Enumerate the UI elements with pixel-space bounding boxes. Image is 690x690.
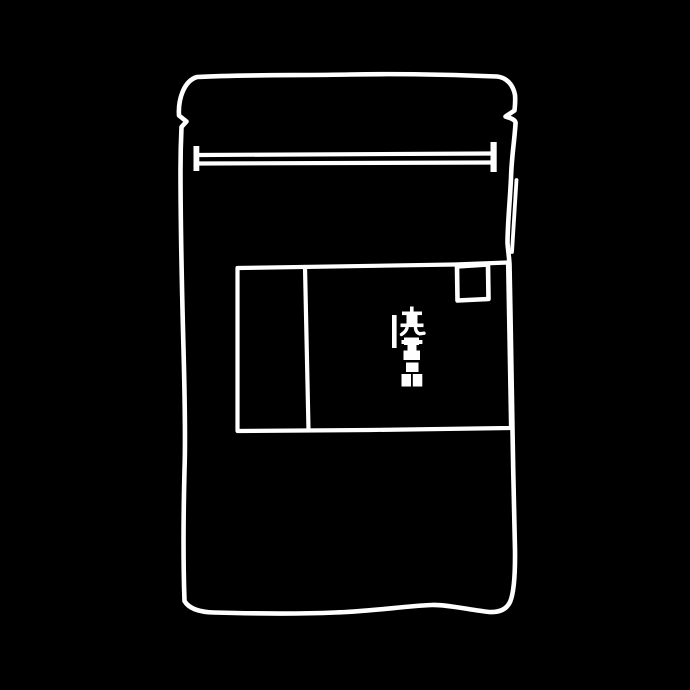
label-corner-square [457, 265, 489, 301]
zip-seal [194, 142, 497, 172]
vertical-text-glyphs [401, 307, 425, 387]
label-border [238, 263, 512, 432]
label-divider [305, 267, 309, 430]
sketch-canvas: 売 [0, 0, 690, 690]
pouch-edge-overlap-stroke [512, 180, 517, 252]
kanji-glyph-1 [401, 307, 425, 335]
label-panel [238, 263, 512, 432]
zip-right-cap [491, 142, 497, 172]
zip-line-bottom [199, 163, 491, 164]
vertical-rule [392, 315, 397, 348]
pouch-illustration [0, 0, 690, 690]
kanji-glyph-2 [402, 338, 423, 361]
zip-left-cap [194, 146, 200, 171]
kanji-glyph-3 [402, 363, 423, 387]
zip-line-top [199, 154, 491, 156]
